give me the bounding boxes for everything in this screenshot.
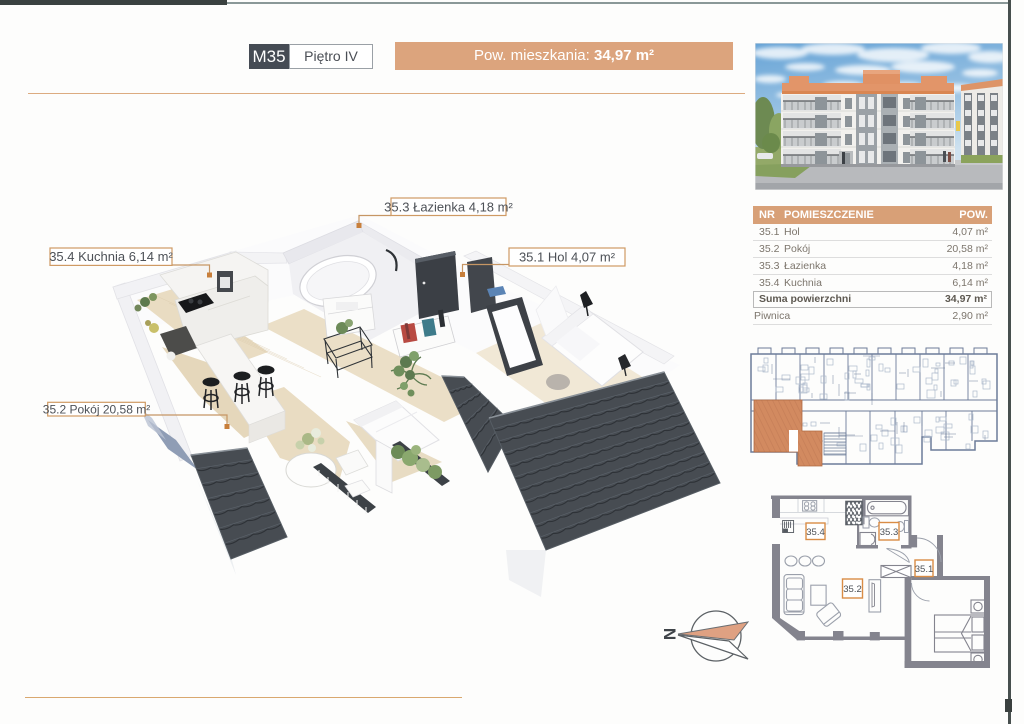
svg-text:35.3: 35.3	[880, 527, 899, 538]
svg-text:35.1 Hol 4,07 m²: 35.1 Hol 4,07 m²	[519, 250, 616, 265]
svg-text:35.1: 35.1	[915, 564, 934, 575]
svg-text:35.2 Pokój 20,58 m²: 35.2 Pokój 20,58 m²	[43, 403, 150, 417]
svg-text:35.4 Kuchnia 6,14 m²: 35.4 Kuchnia 6,14 m²	[49, 249, 173, 264]
svg-text:35.3 Łazienka 4,18 m²: 35.3 Łazienka 4,18 m²	[384, 199, 513, 214]
svg-text:35.4: 35.4	[806, 527, 825, 538]
svg-text:N: N	[660, 628, 679, 640]
svg-text:35.2: 35.2	[843, 584, 862, 595]
